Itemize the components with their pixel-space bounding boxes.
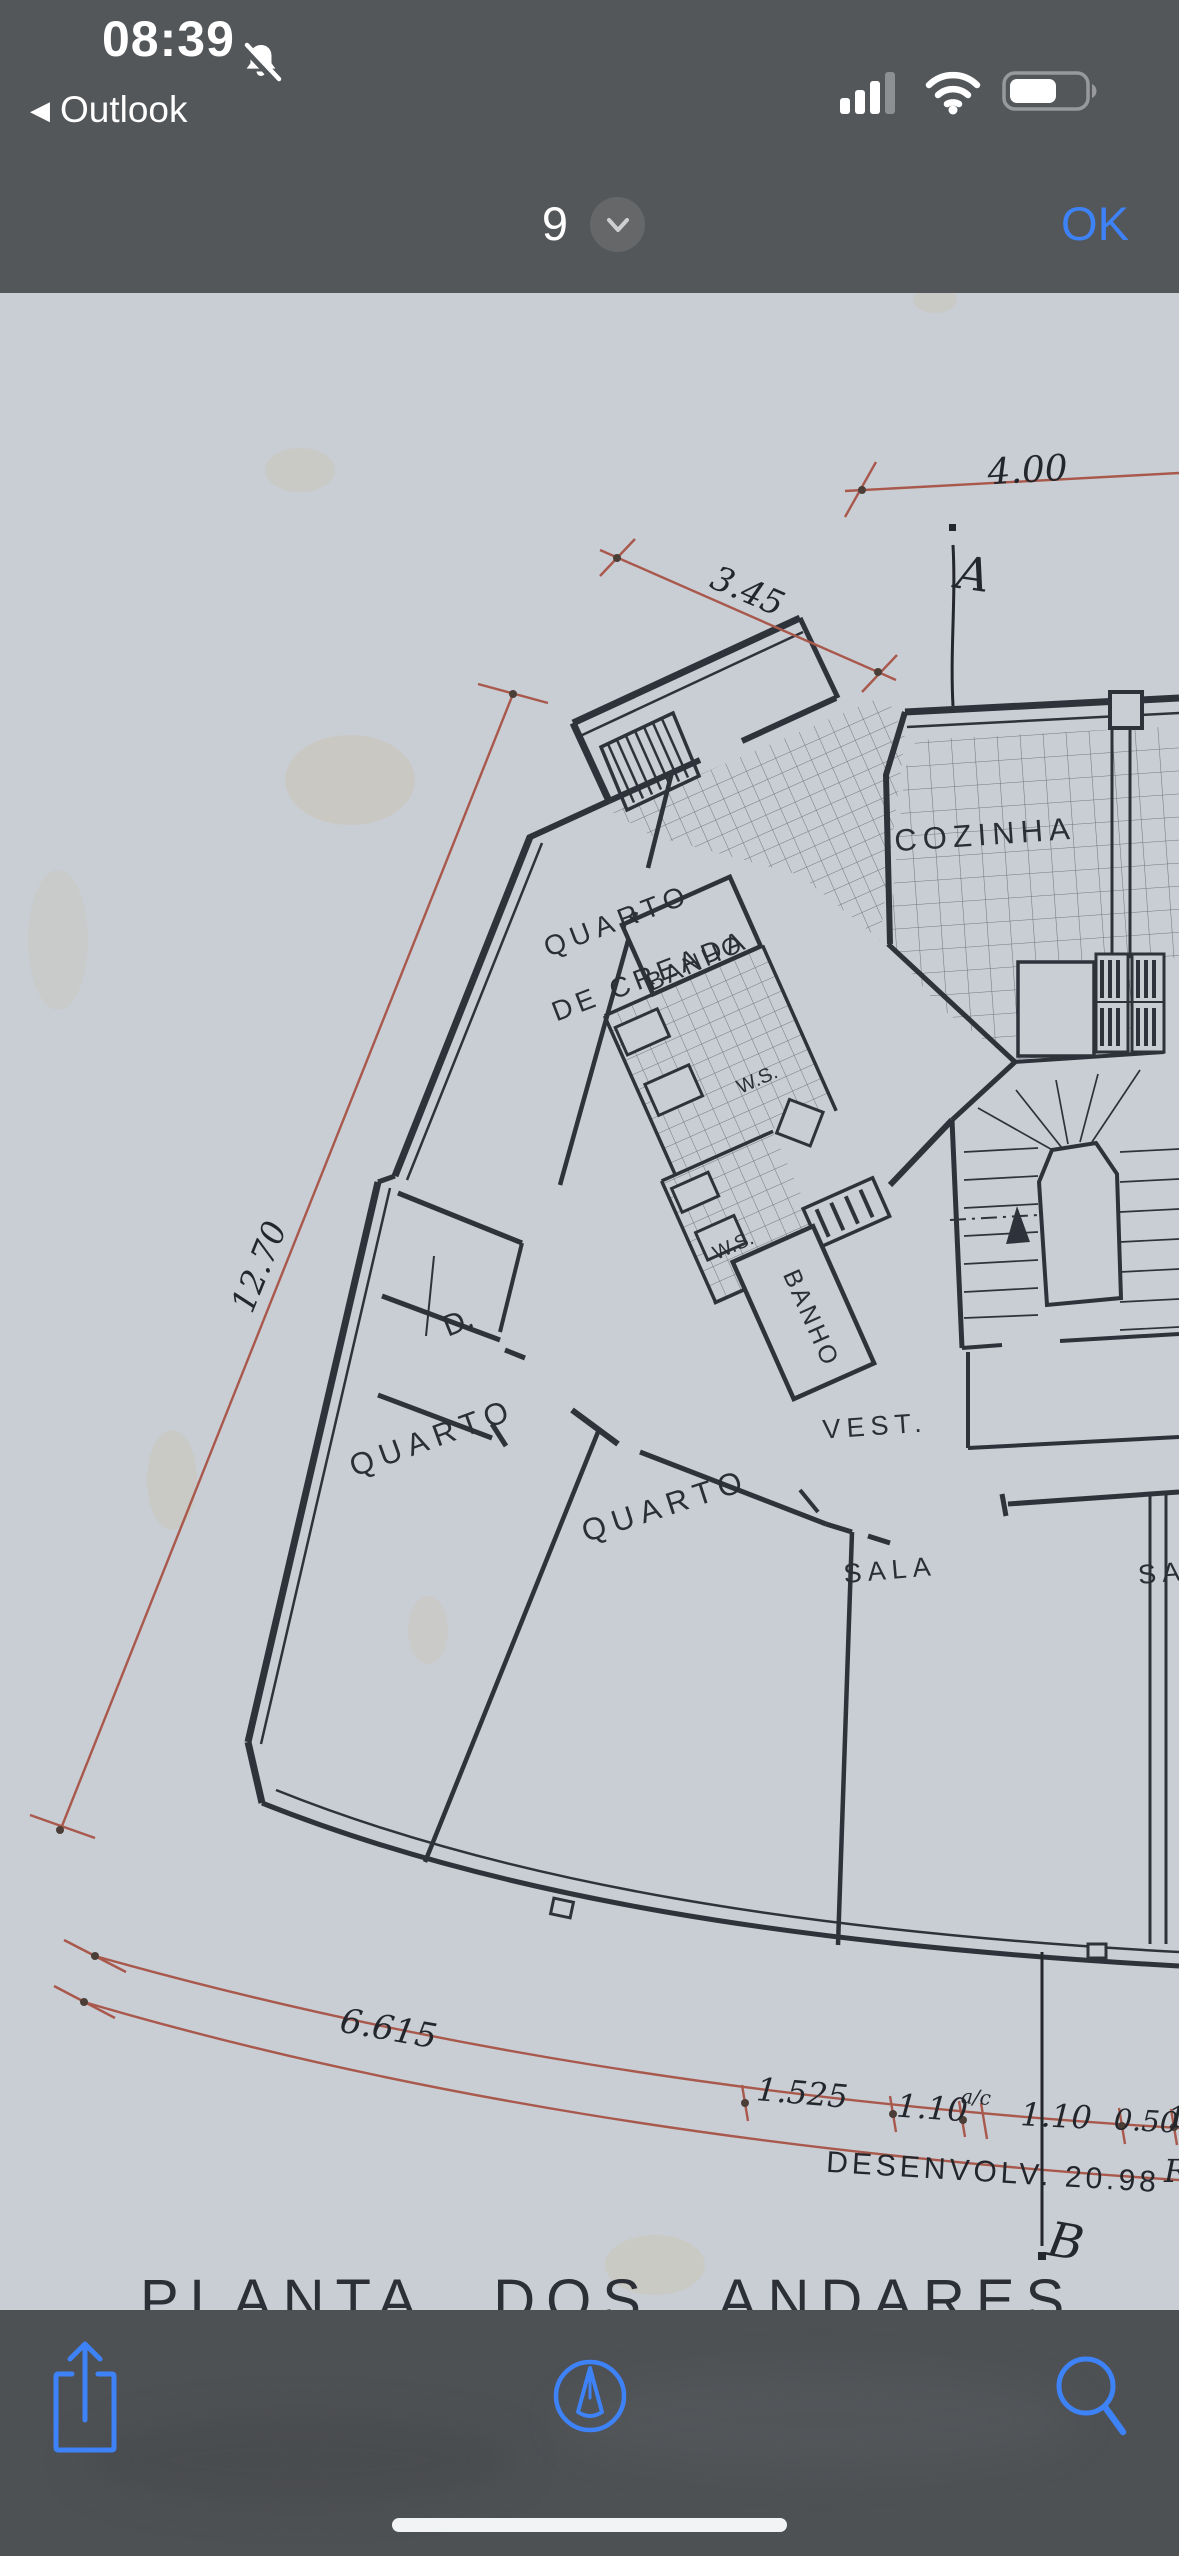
- battery-icon: [1002, 66, 1102, 116]
- notifications-muted-icon: [238, 40, 284, 86]
- dim-development: DESENVOLV. 20.98: [825, 2146, 1161, 2199]
- dim-1-10-b: 1.10: [1020, 2095, 1093, 2137]
- section-marker-a: A: [949, 544, 993, 603]
- chevron-down-icon: [598, 205, 638, 245]
- room-label-closet-d: D.: [438, 1302, 478, 1344]
- toolbar-ghosting: [80, 2370, 1080, 2505]
- dim-4-00: 4.00: [985, 448, 1069, 494]
- page-number-indicator: 9: [520, 196, 590, 251]
- room-label-sala: SALA: [842, 1551, 937, 1589]
- staircase: [890, 1062, 1179, 1448]
- dim-6-615: 6.615: [337, 2001, 440, 2057]
- room-label-quarto-left: QUARTO: [345, 1391, 520, 1483]
- dimension-lines: [30, 462, 1179, 2180]
- section-marker-b: B: [1042, 2211, 1087, 2272]
- floor-plan-svg: A B 4.00 3.45 12.70 6.615 1.525 1.10 a/c…: [0, 293, 1179, 2310]
- dimension-labels: 4.00 3.45 12.70 6.615 1.525 1.10 a/c 1.1…: [223, 448, 1179, 2190]
- page-selector-button[interactable]: [590, 197, 645, 252]
- clock: 08:39: [102, 10, 235, 68]
- ok-button[interactable]: OK: [1040, 196, 1150, 251]
- back-app-label: Outlook: [60, 88, 188, 132]
- document-viewer[interactable]: A B 4.00 3.45 12.70 6.615 1.525 1.10 a/c…: [0, 293, 1179, 2310]
- curved-facade: [248, 1742, 1179, 1966]
- back-to-outlook-button[interactable]: ◀ Outlook: [30, 88, 188, 132]
- home-indicator[interactable]: [392, 2518, 787, 2532]
- room-label-vest: VEST.: [822, 1407, 929, 1444]
- iphone-screen: 08:39 ◀ Outlook: [0, 0, 1179, 2556]
- bathrooms-block: [558, 874, 942, 1413]
- share-icon[interactable]: [56, 2344, 114, 2450]
- dim-ac-note: a/c: [960, 2084, 991, 2110]
- plan-title: PLANTA DOS ANDARES: [140, 2268, 1075, 2310]
- dimension-ticks: [56, 486, 1178, 2131]
- cellular-signal-icon: [840, 66, 904, 116]
- dim-1-525: 1.525: [755, 2070, 850, 2116]
- dim-1-10-a: 1.10: [895, 2087, 969, 2130]
- dim-partial: 1: [1167, 2101, 1179, 2136]
- room-label-quarto-middle: QUARTO: [577, 1462, 753, 1549]
- status-and-nav-bar: 08:39 ◀ Outlook: [0, 0, 1179, 293]
- dim-development-partial: R: [1163, 2152, 1179, 2190]
- bottom-toolbar: [0, 2310, 1179, 2556]
- wifi-icon: [924, 66, 982, 116]
- room-label-sala-partial: SA: [1137, 1556, 1179, 1590]
- status-icons: [840, 66, 1102, 116]
- back-chevron-icon: ◀: [30, 88, 50, 132]
